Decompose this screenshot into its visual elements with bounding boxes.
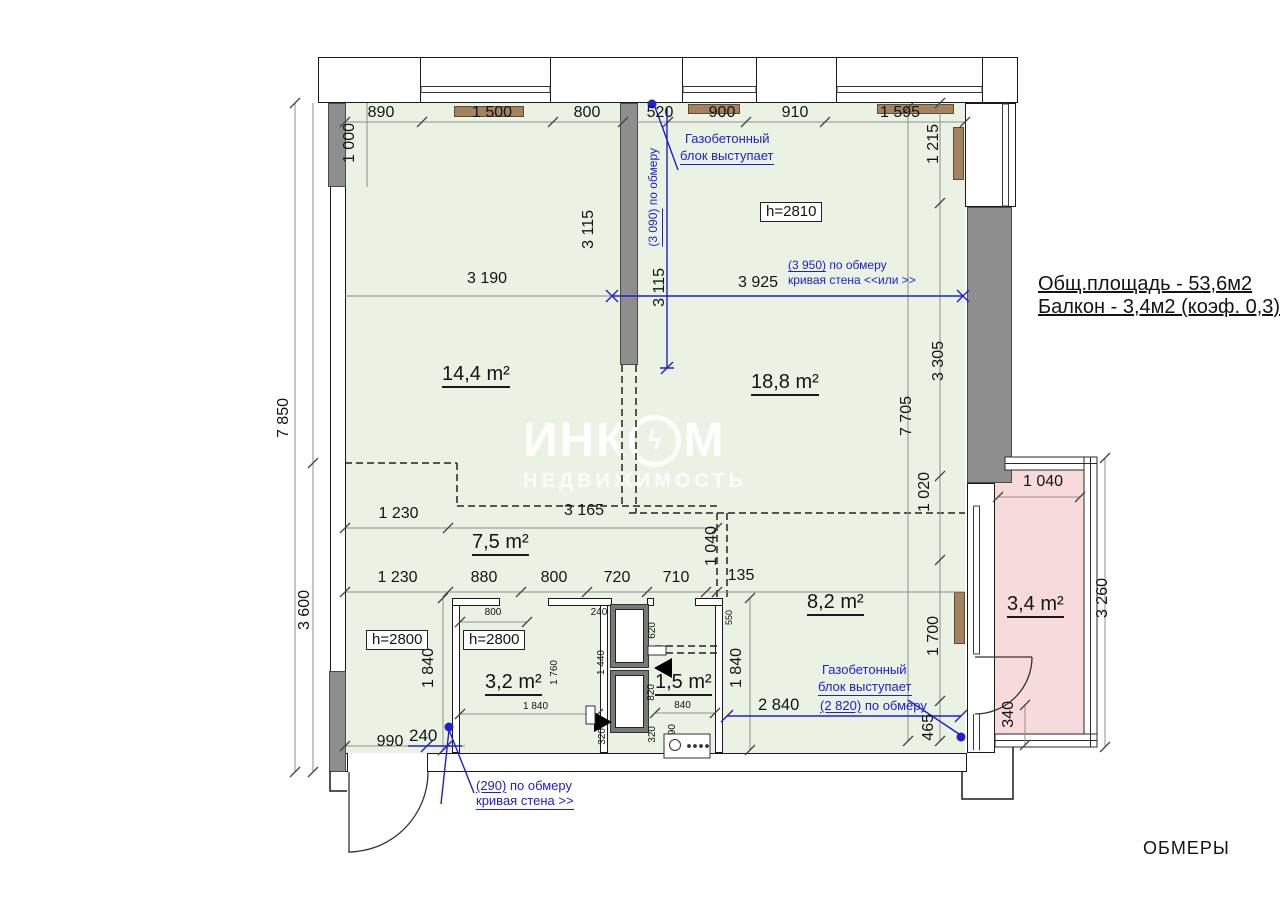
sheet-title: ОБМЕРЫ <box>1143 839 1230 858</box>
dim-mid-3925: 3 925 <box>728 275 788 292</box>
room-label-kitchen: 8,2 m² <box>807 592 864 616</box>
dim-hall-3165: 3 165 <box>549 503 619 520</box>
ceiling-height-room2: h=2810 <box>760 202 822 222</box>
dim-right-3305: 3 305 <box>931 341 948 381</box>
note-gas-bottom-1: Газобетонный <box>822 663 907 677</box>
dim-hall-1230a: 1 230 <box>366 506 431 523</box>
dim-top-800: 800 <box>557 105 617 122</box>
dim-top-1500: 1 500 <box>462 105 522 122</box>
dim-wc-840: 840 <box>660 701 705 712</box>
dim-bath-320a: 320 <box>598 728 609 745</box>
ceiling-height-bath: h=2800 <box>463 630 525 650</box>
dim-left-7850: 7 850 <box>276 398 293 438</box>
dim-bath-800: 800 <box>467 608 519 619</box>
dim-top-1595: 1 595 <box>870 105 930 122</box>
dim-hall-720: 720 <box>592 570 642 587</box>
dim-top-900: 900 <box>692 105 752 122</box>
dim-hall-880: 880 <box>459 570 509 587</box>
dim-top-890: 890 <box>351 105 411 122</box>
dim-bath-1840: 1 840 <box>508 702 563 713</box>
note-gas-top-1: Газобетонный <box>685 132 770 146</box>
entry-door-arc <box>348 772 428 852</box>
note-gas-bottom-2: блок выступает <box>818 680 912 696</box>
dim-hall-800: 800 <box>529 570 579 587</box>
room-label-wc: 1,5 m² <box>655 672 712 696</box>
dim-bath-90: 90 <box>668 724 679 735</box>
dim-right-465: 465 <box>921 714 938 741</box>
bath-door-leaf <box>586 706 595 724</box>
note-obmer-2820: (2 820) по обмеру <box>820 699 927 713</box>
note-curve-wall-right-2: кривая стена <<или >> <box>788 274 916 287</box>
note-gas-top-2: блок выступает <box>680 149 774 165</box>
dim-left-1000: 1 000 <box>342 123 359 163</box>
survey-dot-kitchen <box>957 733 966 742</box>
floor-plan-sheet: ИНК ϟ М НЕДВИЖИМОСТЬ <box>0 0 1280 906</box>
note-curve-entry-1: (290) по обмеру <box>476 779 572 793</box>
room-label-living2: 18,8 m² <box>751 372 819 396</box>
dim-top-910: 910 <box>765 105 825 122</box>
dim-bath-820: 820 <box>647 684 658 701</box>
dim-hall-1230b: 1 230 <box>370 570 425 587</box>
dim-right-7705: 7 705 <box>899 396 916 436</box>
note-curve-entry-2: кривая стена >> <box>476 794 574 810</box>
dim-mid-3115-left: 3 115 <box>581 210 598 249</box>
linework-layer <box>0 0 1280 906</box>
dim-mid-3190: 3 190 <box>452 271 522 288</box>
note-obmer-3090: (3 090) по обмеру <box>647 148 660 247</box>
dim-550: 550 <box>725 610 734 625</box>
dim-balcony-3260: 3 260 <box>1095 578 1112 618</box>
dim-kitchen-2840: 2 840 <box>758 697 799 714</box>
dim-hall-1040: 1 040 <box>704 526 721 566</box>
dim-right-1700: 1 700 <box>926 616 943 656</box>
dim-entry-240: 240 <box>409 727 437 745</box>
dim-bath-1760: 1 760 <box>550 660 561 685</box>
room-label-bath: 3,2 m² <box>485 672 542 696</box>
dim-bath-620: 620 <box>648 622 659 639</box>
dim-bath-320b: 320 <box>648 726 659 743</box>
dim-bath-1840-left: 1 840 <box>421 648 438 688</box>
dim-hall-710: 710 <box>651 570 701 587</box>
dim-entry-990: 990 <box>369 734 411 751</box>
summary-total-area: Общ.площадь - 53,6м2 <box>1038 274 1252 295</box>
summary-balcony-area: Балкон - 3,4м2 (коэф. 0,3) <box>1038 297 1280 318</box>
ceiling-height-hall: h=2800 <box>366 630 428 650</box>
dim-top-520: 520 <box>630 105 690 122</box>
dim-kitchen-1840: 1 840 <box>729 648 746 688</box>
note-curve-wall-right-1: (3 950) по обмеру <box>788 259 887 272</box>
dim-mid-3115-right: 3 115 <box>652 268 669 307</box>
dim-right-1020: 1 020 <box>917 472 934 512</box>
dim-right-1215: 1 215 <box>926 124 943 164</box>
dim-bath-1440: 1 440 <box>597 650 608 675</box>
dim-left-3600: 3 600 <box>297 590 314 630</box>
sink-fixture <box>664 734 710 758</box>
room-label-balcony: 3,4 m² <box>1007 594 1064 618</box>
wc-door-leaf <box>648 646 666 655</box>
dashed-partitions <box>345 365 965 653</box>
room-label-living1: 14,4 m² <box>442 364 510 388</box>
room-label-hall: 7,5 m² <box>472 532 529 556</box>
dim-balcony-1040: 1 040 <box>1013 474 1073 491</box>
dim-hall-135: 135 <box>716 568 766 585</box>
survey-dot-entry <box>445 723 454 732</box>
window-glazing <box>421 87 1009 751</box>
dim-bath-240: 240 <box>584 608 614 619</box>
dim-balcony-340: 340 <box>1001 701 1018 728</box>
